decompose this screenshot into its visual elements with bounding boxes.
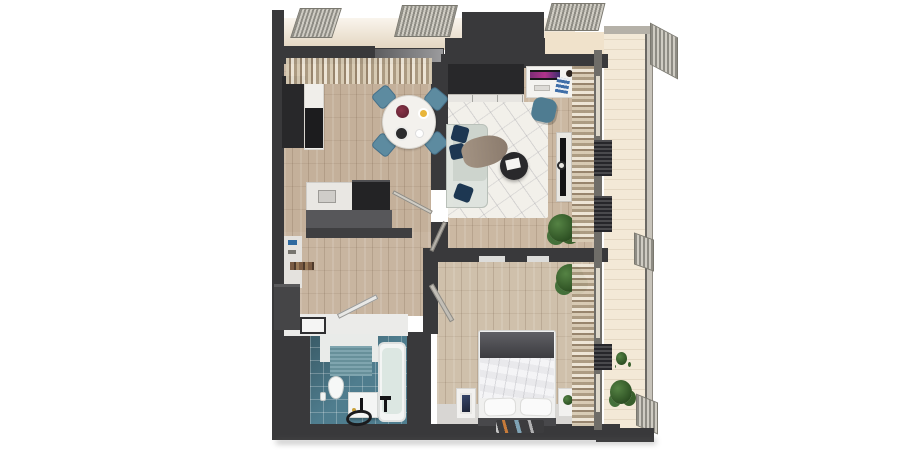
bathtub-faucet (384, 398, 387, 412)
wall-notch-1 (479, 256, 505, 262)
kitchen-tall-cabinet (282, 76, 306, 148)
kitchen-curtain (286, 58, 432, 84)
desk-monitor (530, 70, 560, 80)
bed-pillow-right (520, 397, 553, 416)
hall-shelf-item-blue (288, 240, 297, 245)
laundry-hatch (300, 317, 326, 334)
table-flowers (396, 105, 409, 118)
wall-bathroom-left (272, 330, 310, 426)
bed-blanket (480, 332, 554, 358)
toilet-paper-holder (320, 392, 326, 401)
wall-bathroom-right (407, 332, 431, 426)
ground-shadow (276, 439, 656, 444)
awning-grille-2 (394, 5, 458, 37)
wall-top-step-a (462, 12, 544, 40)
nightstand-art (460, 393, 472, 414)
window-glass-3 (596, 374, 600, 412)
floorplan-render (0, 0, 900, 450)
table-plate-yellow (418, 108, 429, 119)
kitchen-lower-cabinet (306, 210, 392, 230)
hall-bench (274, 284, 300, 330)
hall-shelf-books (290, 262, 314, 270)
balcony-floor (604, 26, 646, 440)
kitchen-oven-block (352, 180, 390, 212)
living-curtain (572, 66, 594, 242)
ac-unit-3 (594, 344, 612, 370)
balcony-top-frame (604, 26, 653, 34)
bathtub-faucet-head (380, 396, 391, 400)
awning-grille-3 (545, 3, 606, 31)
wardrobe (448, 64, 524, 94)
bedroom-curtain (572, 264, 594, 426)
balcony-plant (610, 380, 632, 404)
desk-books (555, 77, 570, 94)
table-small-plate (415, 129, 424, 138)
balcony-railing (645, 26, 653, 440)
balcony-plant-small (616, 352, 627, 365)
desk-keyboard (534, 85, 550, 91)
wall-bottom (272, 424, 620, 440)
bathroom-wall-mat (330, 346, 372, 376)
window-glass-1 (596, 76, 600, 136)
kitchen-cooktop (305, 108, 323, 148)
ac-unit-1 (594, 140, 612, 176)
exterior-mesh-1 (650, 23, 678, 80)
bed-duvet (480, 358, 554, 398)
table-dark-bowl (394, 126, 409, 141)
ac-unit-2 (594, 196, 612, 232)
exterior-mesh-2 (634, 232, 654, 271)
wall-notch-2 (527, 256, 549, 262)
wall-left-jut-top (272, 10, 284, 50)
wall-living-bedroom (423, 248, 608, 262)
tv-bracket (557, 161, 566, 170)
hall-shelf-item-gray (288, 250, 296, 254)
window-glass-2 (596, 268, 600, 338)
hallway-top-band (306, 228, 412, 238)
bedroom-foot-rug (496, 420, 544, 433)
kitchen-sink (318, 190, 336, 203)
dining-table (382, 95, 436, 149)
bed-pillow-left (484, 397, 517, 416)
